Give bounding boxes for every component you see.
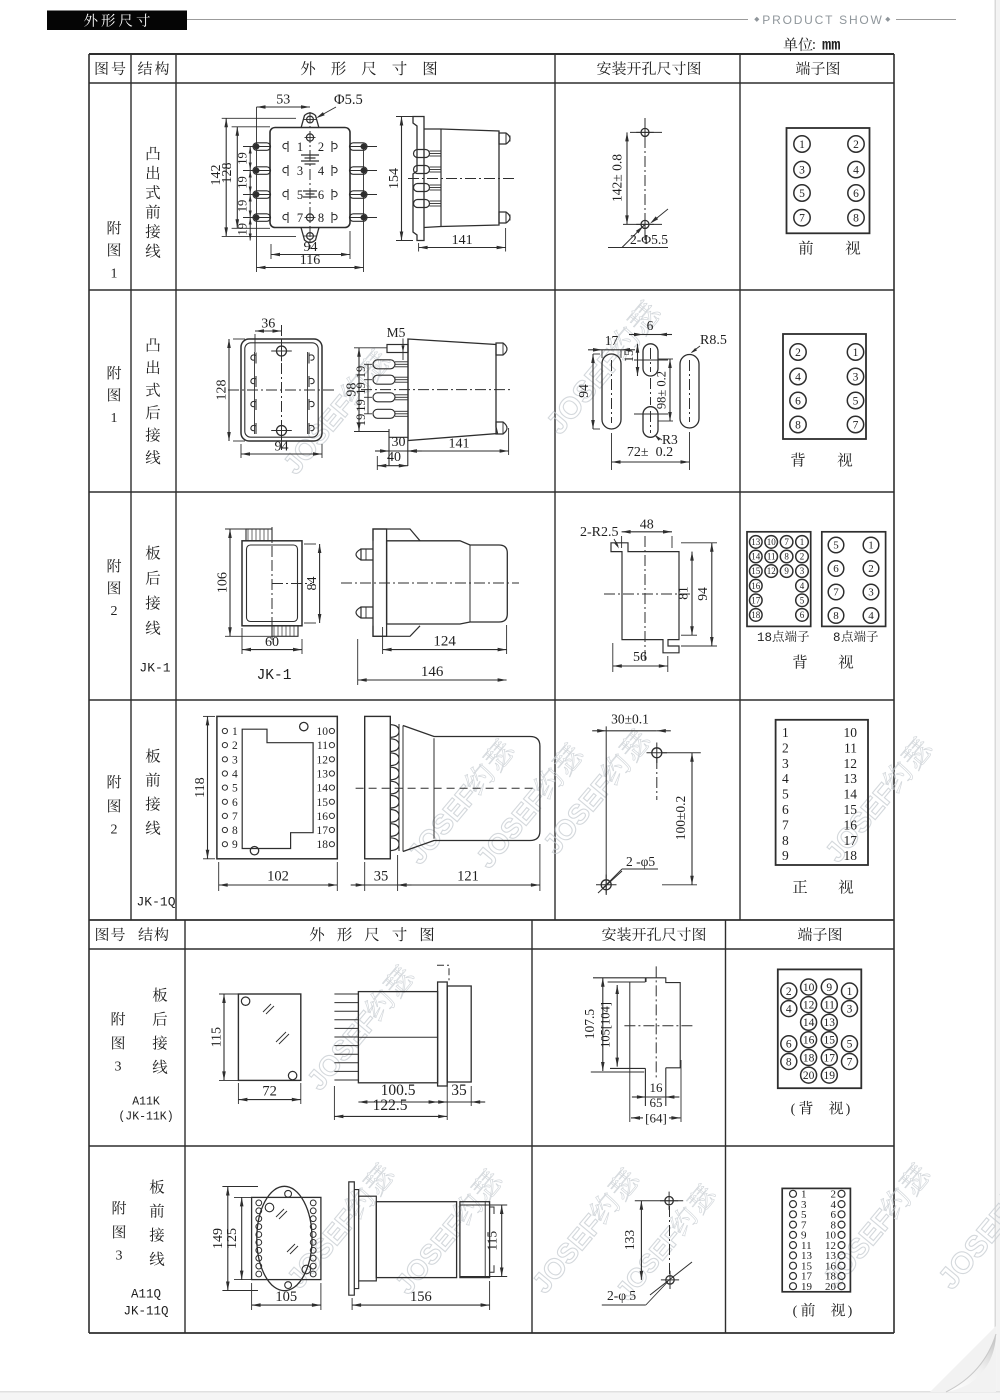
svg-text:11: 11: [317, 740, 328, 752]
svg-text:13: 13: [844, 771, 858, 786]
svg-text:3: 3: [297, 164, 303, 178]
svg-text:3: 3: [115, 1060, 122, 1075]
svg-text:14: 14: [317, 783, 329, 795]
svg-text:1: 1: [111, 411, 118, 426]
svg-text:4: 4: [232, 769, 238, 781]
svg-text:19: 19: [801, 1281, 813, 1293]
svg-text:8: 8: [784, 552, 789, 562]
svg-text:17: 17: [751, 595, 761, 605]
svg-text:98± 0.2: 98± 0.2: [655, 371, 669, 409]
svg-text:4: 4: [868, 610, 874, 622]
svg-text:9: 9: [232, 839, 238, 851]
svg-text:9: 9: [782, 848, 789, 863]
svg-text:102: 102: [267, 869, 289, 885]
svg-text:1: 1: [782, 725, 789, 740]
svg-text:141: 141: [449, 437, 470, 452]
svg-text:65: 65: [650, 1095, 663, 1110]
svg-text:JOSEF: JOSEF: [389, 1210, 472, 1300]
svg-text:8: 8: [833, 631, 841, 645]
svg-text:10: 10: [844, 725, 858, 740]
svg-text:PRODUCT SHOW: PRODUCT SHOW: [762, 13, 883, 27]
svg-text:15: 15: [824, 1035, 836, 1047]
svg-text:128: 128: [215, 380, 230, 401]
svg-text:12: 12: [767, 566, 776, 576]
svg-text:16: 16: [751, 581, 761, 591]
svg-text:2: 2: [800, 552, 805, 562]
svg-text:6: 6: [800, 610, 805, 620]
svg-text:1: 1: [868, 540, 874, 552]
svg-text:5: 5: [782, 787, 789, 802]
svg-text:JK-1: JK-1: [257, 668, 292, 684]
svg-text:3: 3: [800, 566, 805, 576]
svg-text:18: 18: [844, 848, 858, 863]
svg-text:6: 6: [647, 318, 654, 333]
svg-text:3: 3: [868, 587, 874, 599]
svg-text:15: 15: [317, 797, 329, 809]
svg-text:146: 146: [421, 664, 444, 680]
svg-text:M5: M5: [387, 325, 406, 340]
svg-text:7: 7: [853, 419, 859, 431]
svg-text:3: 3: [799, 165, 805, 177]
svg-text:124: 124: [433, 634, 456, 650]
svg-text:12: 12: [317, 754, 329, 766]
svg-text:56: 56: [633, 650, 647, 665]
svg-text:18: 18: [317, 839, 329, 851]
svg-text:11: 11: [824, 1000, 835, 1012]
svg-text:1: 1: [297, 140, 303, 154]
svg-text:19: 19: [354, 399, 368, 412]
svg-text:13: 13: [824, 1017, 836, 1029]
svg-text:JOSEF: JOSEF: [819, 778, 902, 868]
svg-text:6: 6: [782, 802, 789, 817]
svg-text:14: 14: [803, 1017, 815, 1029]
svg-text:5: 5: [297, 188, 303, 202]
svg-text:122.5: 122.5: [373, 1097, 408, 1114]
svg-text:5: 5: [799, 188, 805, 200]
svg-text:5: 5: [833, 540, 839, 552]
svg-text:2: 2: [782, 740, 789, 755]
svg-text:6: 6: [318, 188, 324, 202]
svg-text:8: 8: [786, 1056, 792, 1068]
svg-text:94: 94: [275, 440, 289, 455]
svg-text:11: 11: [844, 740, 857, 755]
svg-text:R8.5: R8.5: [700, 333, 727, 348]
svg-text:12: 12: [844, 756, 858, 771]
svg-text:14: 14: [844, 787, 858, 802]
svg-text:9: 9: [826, 982, 832, 994]
svg-text:2: 2: [853, 139, 859, 151]
svg-text:105[104]: 105[104]: [599, 1002, 613, 1048]
svg-text:1: 1: [853, 347, 859, 359]
svg-text:2: 2: [795, 347, 801, 359]
svg-text:17: 17: [317, 825, 329, 837]
svg-text::: :: [812, 37, 816, 53]
svg-text:JOSEF: JOSEF: [281, 1204, 364, 1294]
svg-text:8: 8: [853, 213, 859, 225]
svg-text:8: 8: [318, 211, 324, 225]
svg-text:116: 116: [300, 253, 320, 268]
svg-text:5: 5: [853, 395, 859, 407]
svg-text:1: 1: [800, 537, 805, 547]
svg-text:7: 7: [847, 1056, 853, 1068]
svg-text:8: 8: [833, 610, 839, 622]
svg-text:115: 115: [210, 1027, 225, 1047]
svg-text:3: 3: [782, 756, 789, 771]
svg-text:16: 16: [844, 817, 858, 832]
svg-text:JK-1: JK-1: [139, 661, 170, 676]
svg-text:149: 149: [211, 1228, 226, 1249]
svg-text:4: 4: [782, 771, 789, 786]
svg-text:154: 154: [387, 168, 402, 189]
svg-text:(JK-11K): (JK-11K): [118, 1111, 173, 1124]
svg-text:84: 84: [305, 577, 320, 591]
svg-text:121: 121: [457, 869, 479, 885]
svg-text:3: 3: [847, 1004, 853, 1016]
svg-text:156: 156: [410, 1289, 432, 1305]
svg-text:36: 36: [261, 317, 275, 332]
svg-text:7: 7: [833, 587, 839, 599]
svg-text:6: 6: [786, 1039, 792, 1051]
svg-text:1: 1: [111, 267, 118, 282]
svg-text:JOSEF: JOSEF: [932, 1199, 1000, 1296]
svg-text:16: 16: [803, 1035, 815, 1047]
svg-text:8: 8: [782, 833, 789, 848]
svg-text:10: 10: [803, 982, 815, 994]
svg-text:19: 19: [354, 382, 368, 395]
svg-text:2: 2: [868, 563, 874, 575]
svg-text:7: 7: [232, 811, 238, 823]
svg-text:): ): [846, 1102, 851, 1117]
svg-text:JOSEF: JOSEF: [526, 1209, 609, 1299]
svg-text:141: 141: [452, 233, 473, 248]
svg-text:19: 19: [236, 152, 250, 165]
svg-text:6: 6: [853, 188, 859, 200]
svg-text:(: (: [791, 1102, 796, 1117]
svg-text:1: 1: [799, 139, 805, 151]
svg-text:1: 1: [847, 986, 853, 998]
svg-text:8: 8: [795, 419, 801, 431]
svg-text:72: 72: [262, 1084, 277, 1100]
svg-text:20: 20: [803, 1070, 815, 1082]
svg-text:72± 0.2: 72± 0.2: [627, 445, 673, 460]
svg-text:18: 18: [751, 610, 761, 620]
svg-text:125: 125: [225, 1228, 240, 1249]
svg-text:35: 35: [451, 1082, 467, 1099]
svg-text:3: 3: [853, 371, 859, 383]
svg-text:4: 4: [795, 371, 801, 383]
svg-text:2 -φ5: 2 -φ5: [626, 854, 655, 869]
svg-text:2: 2: [111, 604, 118, 619]
svg-text:35: 35: [374, 869, 389, 885]
svg-text:11: 11: [767, 552, 776, 562]
svg-text:19: 19: [824, 1070, 836, 1082]
svg-text:53: 53: [276, 93, 290, 108]
svg-text:48: 48: [640, 517, 654, 532]
svg-text:4: 4: [800, 581, 805, 591]
svg-text:19: 19: [354, 366, 368, 379]
svg-text:5: 5: [232, 783, 238, 795]
svg-text:2: 2: [232, 740, 238, 752]
svg-text:18: 18: [803, 1052, 815, 1064]
svg-text:1: 1: [232, 726, 238, 738]
svg-text:105: 105: [275, 1289, 297, 1305]
svg-text:): ): [848, 1304, 853, 1319]
svg-text:JK-11Q: JK-11Q: [123, 1305, 168, 1319]
svg-text:7: 7: [799, 213, 805, 225]
svg-text:9: 9: [784, 566, 789, 576]
svg-text:16: 16: [650, 1080, 664, 1095]
svg-text:17: 17: [824, 1052, 836, 1064]
svg-text:2: 2: [111, 823, 118, 838]
svg-text:133: 133: [622, 1230, 637, 1251]
svg-text:19: 19: [236, 176, 250, 189]
svg-text:118: 118: [193, 777, 208, 797]
svg-text:20: 20: [825, 1281, 837, 1293]
svg-text:2-φ 5: 2-φ 5: [607, 1288, 636, 1303]
svg-text:17: 17: [844, 833, 858, 848]
svg-text:6: 6: [795, 395, 801, 407]
svg-text:5: 5: [800, 595, 805, 605]
svg-text:A11Q: A11Q: [131, 1288, 161, 1302]
svg-text:19: 19: [236, 200, 250, 213]
svg-text:4: 4: [786, 1004, 792, 1016]
svg-text:107.5: 107.5: [582, 1009, 597, 1040]
svg-text:8: 8: [232, 825, 238, 837]
svg-text:5: 5: [847, 1039, 853, 1051]
svg-text:2-Φ5.5: 2-Φ5.5: [630, 232, 668, 247]
svg-text:10: 10: [317, 726, 329, 738]
svg-text:[64]: [64]: [645, 1111, 667, 1126]
svg-text:mm: mm: [822, 37, 841, 55]
svg-text:10: 10: [767, 537, 777, 547]
svg-text:100±0.2: 100±0.2: [673, 796, 688, 841]
svg-text:6: 6: [833, 563, 839, 575]
svg-text:18: 18: [757, 631, 772, 645]
svg-text:16: 16: [317, 811, 329, 823]
svg-text:15: 15: [844, 802, 858, 817]
svg-text:15: 15: [622, 350, 636, 363]
svg-text:7: 7: [297, 211, 303, 225]
svg-text:(: (: [793, 1304, 798, 1319]
svg-text:142± 0.8: 142± 0.8: [610, 154, 625, 202]
svg-text:15: 15: [751, 566, 761, 576]
svg-text:3: 3: [116, 1249, 123, 1264]
svg-text:13: 13: [751, 537, 761, 547]
svg-text:4: 4: [853, 165, 859, 177]
svg-text:6: 6: [232, 797, 238, 809]
svg-text:JOSEF: JOSEF: [537, 770, 620, 860]
svg-text:12: 12: [803, 1000, 815, 1012]
svg-text:17: 17: [605, 333, 619, 348]
svg-text:2-R2.5: 2-R2.5: [580, 525, 619, 540]
svg-text:4: 4: [318, 164, 325, 178]
svg-text:19: 19: [354, 414, 368, 427]
svg-text:2: 2: [786, 986, 792, 998]
svg-text:7: 7: [784, 537, 789, 547]
svg-text:19: 19: [236, 223, 250, 236]
svg-text:2: 2: [318, 140, 324, 154]
svg-text:JK-1Q: JK-1Q: [136, 895, 175, 910]
svg-text:13: 13: [317, 769, 329, 781]
svg-text:81: 81: [676, 586, 691, 600]
svg-text:14: 14: [751, 552, 761, 562]
svg-text:60: 60: [265, 635, 279, 650]
svg-text:94: 94: [576, 384, 591, 398]
svg-text:Φ5.5: Φ5.5: [334, 92, 363, 108]
svg-text:128: 128: [220, 163, 235, 184]
svg-text:30±0.1: 30±0.1: [611, 712, 649, 727]
svg-text:A11K: A11K: [132, 1096, 160, 1109]
svg-text:3: 3: [232, 754, 238, 766]
svg-text:40: 40: [387, 450, 401, 465]
svg-text:106: 106: [216, 572, 231, 593]
svg-text:7: 7: [782, 817, 789, 832]
svg-text:94: 94: [695, 587, 710, 601]
svg-text:30: 30: [392, 435, 406, 450]
svg-text:115: 115: [485, 1231, 500, 1251]
